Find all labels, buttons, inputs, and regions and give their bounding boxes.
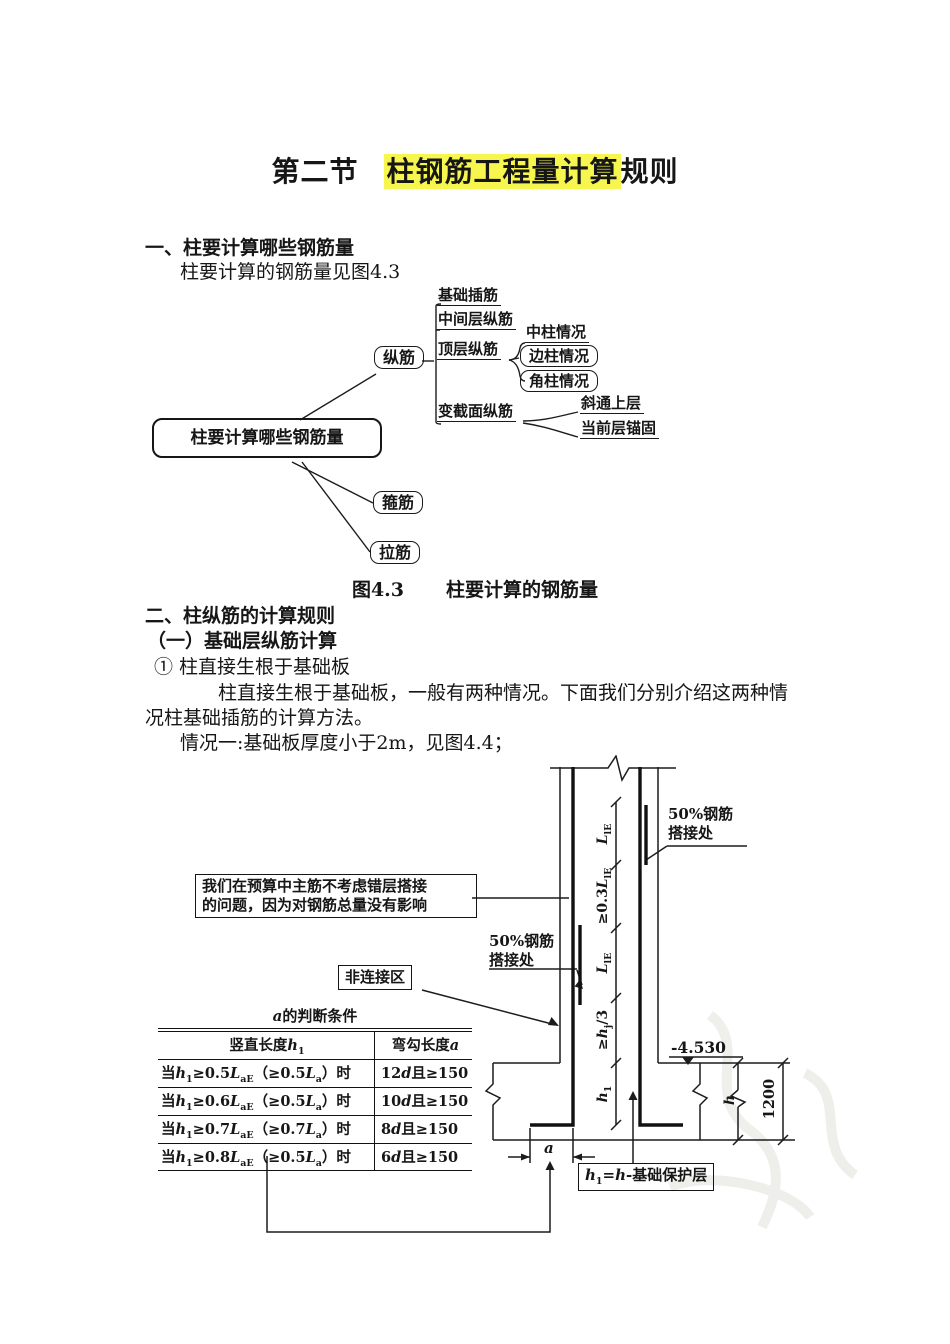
h1-formula-box: h1=h-基础保护层 — [578, 1163, 714, 1191]
connector-up-arrow — [546, 1161, 555, 1170]
dim-prefix: ≥ — [595, 1038, 611, 1050]
page-title: 第二节柱钢筋工程量计算规则 — [0, 150, 950, 190]
lap-label-mid-line1: 50%钢筋 — [489, 932, 554, 951]
table-grid: 竖直长度h1 弯勾长度a 当h1≥0.5LaE（≥0.5La）时 12d且≥15… — [158, 1028, 472, 1171]
note-line1: 我们在预算中主筋不考虑错层搭接 — [202, 877, 470, 896]
dim-subscript: j — [603, 1025, 614, 1028]
cell-text: ）时 — [322, 1121, 351, 1138]
dim-label-h: h — [722, 1087, 738, 1113]
cell-subscript: aE — [240, 1157, 253, 1168]
cell-var: h — [176, 1065, 187, 1082]
figure-4-4-drawing: 我们在预算中主筋不考虑错层搭接 的问题，因为对钢筋总量没有影响 50%钢筋 搭接… — [150, 755, 910, 1265]
dim-var: L — [595, 964, 611, 974]
cell-var: L — [306, 1121, 316, 1138]
cell-text: 当 — [161, 1121, 176, 1138]
cell-var: L — [230, 1065, 240, 1082]
dim-var: L — [595, 835, 611, 845]
tree-node-lajin: 拉筋 — [370, 541, 420, 564]
condition-cell: 当h1≥0.7LaE（≥0.7La）时 — [158, 1116, 375, 1143]
note-box: 我们在预算中主筋不考虑错层搭接 的问题，因为对钢筋总量没有影响 — [195, 874, 477, 918]
condition-cell: 当h1≥0.6LaE（≥0.5La）时 — [158, 1088, 375, 1115]
table-header-col2: 弯勾长度a — [375, 1032, 472, 1059]
cell-subscript: aE — [240, 1102, 253, 1113]
slab-left-edge-break — [486, 1063, 500, 1140]
tree-node-bianjiemian: 变截面纵筋 — [437, 402, 516, 422]
dim-var: a — [544, 1139, 554, 1157]
header-text: 竖直长度 — [229, 1037, 287, 1054]
lap-label-top: 50%钢筋 搭接处 — [668, 805, 733, 843]
cell-subscript: 1 — [186, 1157, 193, 1168]
table-header-col1: 竖直长度h1 — [158, 1032, 375, 1059]
formula-text: -基础保护层 — [626, 1166, 707, 1184]
cell-var: L — [306, 1149, 316, 1166]
connector-root-lajin — [302, 462, 370, 552]
tree-node-zhongzhu: 中柱情况 — [525, 323, 589, 343]
hook-cell: 10d且≥150 — [375, 1088, 472, 1115]
connector-root-zongjin — [300, 374, 376, 420]
tree-node-dangqian: 当前层锚固 — [580, 419, 659, 439]
dim-var: h — [595, 1028, 611, 1038]
cell-text: （≥0.7 — [254, 1121, 306, 1138]
dim-suffix: /3 — [595, 1010, 611, 1025]
dim-label-a: a — [544, 1139, 554, 1158]
section2-para-line2: 况柱基础插筋的计算方法。 — [145, 703, 373, 730]
table-row: 当h1≥0.7LaE（≥0.7La）时 8d且≥150 — [158, 1116, 472, 1144]
cell-text: （≥0.5 — [254, 1149, 306, 1166]
hook-cell: 6d且≥150 — [375, 1144, 472, 1171]
cell-text: （≥0.5 — [254, 1065, 306, 1082]
cell-var: h — [176, 1149, 187, 1166]
dim-var: h — [722, 1095, 738, 1105]
lap-mid-leader — [489, 969, 582, 985]
a-judgement-table: a的判断条件 竖直长度h1 弯勾长度a 当h1≥0.5LaE（≥0.5La）时 … — [158, 1005, 472, 1171]
tree-node-jiaozhu: 角柱情况 — [520, 370, 598, 392]
table-row: 当h1≥0.8LaE（≥0.5La）时 6d且≥150 — [158, 1144, 472, 1172]
formula-equals: = — [603, 1166, 616, 1184]
tree-node-gujin: 箍筋 — [373, 491, 423, 514]
hook-cell: 12d且≥150 — [375, 1060, 472, 1087]
cell-var: d — [391, 1121, 401, 1138]
dim-label-lle-top: LlE — [595, 805, 614, 863]
cell-var: L — [306, 1065, 316, 1082]
note-line2: 的问题，因为对钢筋总量没有影响 — [202, 896, 470, 915]
header-var: h — [287, 1037, 298, 1054]
table-row: 当h1≥0.5LaE（≥0.5La）时 12d且≥150 — [158, 1060, 472, 1088]
dim-label-hj3: ≥hj/3 — [595, 999, 614, 1061]
condition-cell: 当h1≥0.5LaE（≥0.5La）时 — [158, 1060, 375, 1087]
cell-subscript: aE — [240, 1074, 253, 1085]
lap-label-mid: 50%钢筋 搭接处 — [489, 932, 554, 970]
section2-heading: 二、柱纵筋的计算规则 — [145, 601, 335, 628]
table-title: a的判断条件 — [158, 1005, 472, 1026]
cell-subscript: aE — [240, 1130, 253, 1141]
cell-text: 且≥150 — [411, 1093, 468, 1110]
tree-node-zhongjianceng: 中间层纵筋 — [437, 310, 516, 330]
tree-node-xietong: 斜通上层 — [580, 394, 644, 414]
cell-text: 当 — [161, 1149, 176, 1166]
dim-var: h — [595, 1092, 611, 1102]
nonconnect-arrow — [548, 1017, 559, 1026]
tree-node-jichucha: 基础插筋 — [437, 286, 501, 306]
lap-label-mid-line2: 搭接处 — [489, 951, 554, 970]
header-subscript: 1 — [298, 1046, 305, 1057]
hook-cell: 8d且≥150 — [375, 1116, 472, 1143]
section1-heading: 一、柱要计算哪些钢筋量 — [145, 233, 354, 260]
title-suffix: 规则 — [621, 155, 679, 188]
level-mark: -4.530 — [671, 1038, 726, 1057]
document-page: 第二节柱钢筋工程量计算规则 一、柱要计算哪些钢筋量 柱要计算的钢筋量见图4.3 … — [0, 0, 950, 1344]
caption-number: 图4.3 — [352, 579, 404, 601]
cell-text: 6 — [381, 1149, 391, 1166]
cell-text: ≥0.7 — [193, 1121, 230, 1138]
column-top-break — [550, 756, 676, 780]
tree-node-bianzhu: 边柱情况 — [520, 345, 598, 367]
connector-root-gujin — [292, 462, 373, 503]
dim-label-lle-mid: LlE — [595, 930, 614, 996]
figure-4-3-tree-diagram: 基础插筋 中间层纵筋 顶层纵筋 中柱情况 边柱情况 角柱情况 纵筋 变截面纵筋 … — [140, 282, 720, 582]
figure-4-3-caption: 图4.3柱要计算的钢筋量 — [0, 575, 950, 602]
table-row: 当h1≥0.6LaE（≥0.5La）时 10d且≥150 — [158, 1088, 472, 1116]
cell-text: ）时 — [322, 1093, 351, 1110]
formula-var: h — [585, 1166, 596, 1184]
cell-var: d — [391, 1149, 401, 1166]
dim-prefix: ≥0.3 — [595, 888, 611, 924]
title-highlighted: 柱钢筋工程量计算 — [384, 154, 620, 189]
cell-text: 当 — [161, 1065, 176, 1082]
formula-up-arrow — [629, 1091, 638, 1100]
dim-subscript: lE — [603, 953, 614, 964]
table-title-var: a — [273, 1007, 283, 1025]
cell-text: （≥0.5 — [254, 1093, 306, 1110]
condition-cell: 当h1≥0.8LaE（≥0.5La）时 — [158, 1144, 375, 1171]
header-var: a — [450, 1037, 459, 1054]
dim-var: L — [595, 878, 611, 888]
cell-text: 且≥150 — [401, 1149, 458, 1166]
cell-var: h — [176, 1093, 187, 1110]
lap-label-top-line1: 50%钢筋 — [668, 805, 733, 824]
cell-text: 且≥150 — [401, 1121, 458, 1138]
table-title-text: 的判断条件 — [282, 1007, 357, 1025]
cell-var: d — [401, 1065, 411, 1082]
cell-subscript: 1 — [186, 1074, 193, 1085]
cell-var: d — [401, 1093, 411, 1110]
title-prefix: 第二节 — [271, 155, 358, 188]
section2-case1: 情况一:基础板厚度小于2m，见图4.4； — [180, 728, 513, 755]
formula-subscript: 1 — [596, 1176, 603, 1187]
cell-text: 且≥150 — [411, 1065, 468, 1082]
cell-text: 10 — [381, 1093, 401, 1110]
header-text: 弯勾长度 — [392, 1037, 450, 1054]
level-triangle — [682, 1057, 694, 1065]
non-connect-box: 非连接区 — [338, 965, 412, 990]
cell-var: h — [176, 1121, 187, 1138]
dim-label-h1: h1 — [595, 1065, 614, 1123]
cell-subscript: 1 — [186, 1102, 193, 1113]
cell-text: 12 — [381, 1065, 401, 1082]
cell-var: L — [306, 1093, 316, 1110]
cell-text: 8 — [381, 1121, 391, 1138]
table-header-row: 竖直长度h1 弯勾长度a — [158, 1032, 472, 1060]
tree-root-node: 柱要计算哪些钢筋量 — [152, 418, 382, 458]
cell-var: L — [230, 1121, 240, 1138]
section1-intro: 柱要计算的钢筋量见图4.3 — [180, 257, 400, 284]
slab-right-break — [693, 1063, 707, 1140]
cell-var: L — [230, 1149, 240, 1166]
connector-bianjiemian-dangqian — [523, 423, 578, 437]
tree-node-zongjin: 纵筋 — [374, 346, 424, 369]
cell-text: ）时 — [322, 1149, 351, 1166]
dim-label-03lle: ≥0.3LlE — [595, 866, 614, 926]
tree-node-dingceng: 顶层纵筋 — [437, 340, 501, 360]
caption-text: 柱要计算的钢筋量 — [446, 579, 598, 601]
lap-top-leader — [646, 846, 747, 860]
section2-subheading: （一）基础层纵筋计算 — [147, 626, 337, 653]
cell-text: ）时 — [322, 1065, 351, 1082]
lap-label-top-line2: 搭接处 — [668, 824, 733, 843]
cell-text: ≥0.5 — [193, 1065, 230, 1082]
cell-subscript: 1 — [186, 1130, 193, 1141]
cell-text: 当 — [161, 1093, 176, 1110]
dim-subscript: lE — [603, 868, 614, 879]
section2-item1: ① 柱直接生根于基础板 — [154, 652, 350, 679]
cell-text: ≥0.6 — [193, 1093, 230, 1110]
cell-text: ≥0.8 — [193, 1149, 230, 1166]
section2-para-line1: 柱直接生根于基础板，一般有两种情况。下面我们分别介绍这两种情 — [218, 678, 788, 705]
a-arrow-right — [573, 1154, 582, 1161]
dim-label-1200: 1200 — [761, 1071, 778, 1127]
a-arrow-left — [521, 1154, 530, 1161]
formula-var: h — [615, 1166, 626, 1184]
connector-bianjiemian-xietong — [523, 412, 578, 421]
cell-var: L — [230, 1093, 240, 1110]
dim-subscript: 1 — [603, 1086, 614, 1093]
dim-subscript: lE — [603, 824, 614, 835]
